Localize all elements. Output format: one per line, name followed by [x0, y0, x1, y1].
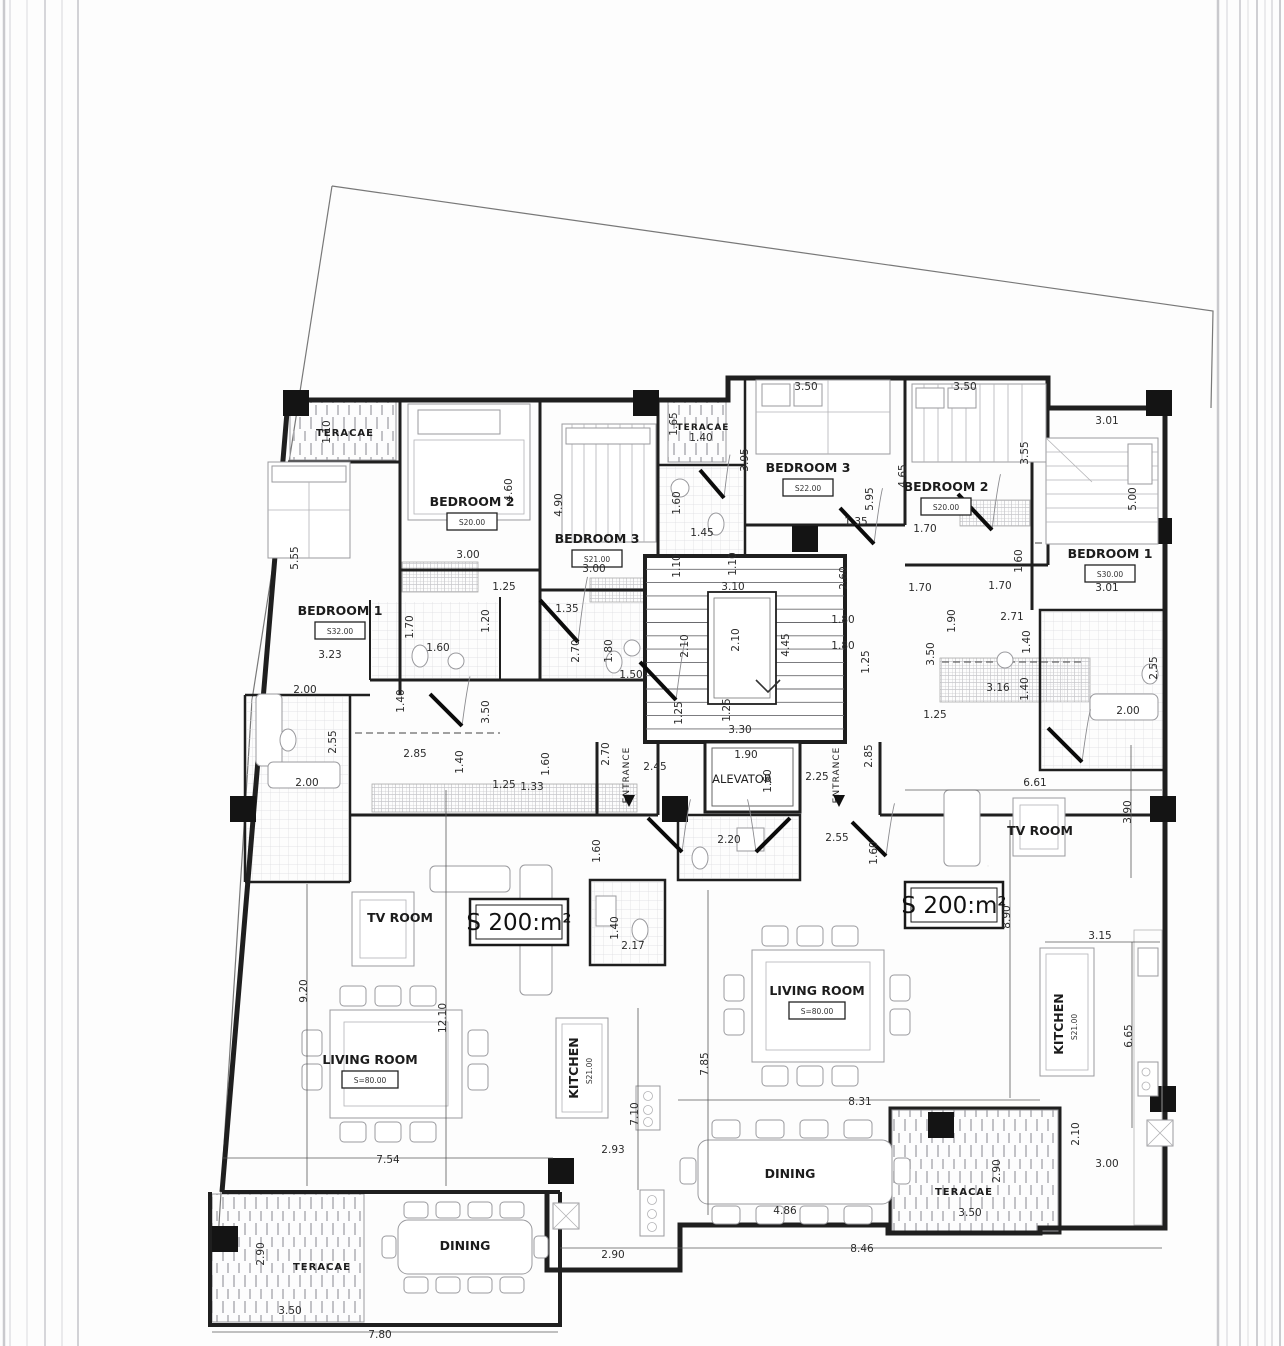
- room-label: DINING: [440, 1238, 491, 1253]
- dimension-label: 1.70: [988, 580, 1011, 592]
- stove-bottom-left: [640, 1190, 664, 1236]
- room-label: LIVING ROOM: [322, 1052, 417, 1067]
- dimension-label: 2.55: [825, 832, 848, 844]
- room-label: DINING: [765, 1166, 816, 1181]
- room-label: TERACAE: [935, 1187, 993, 1198]
- dimension-label: 2.70: [570, 639, 582, 662]
- dimension-label: 1.70: [913, 523, 936, 535]
- dimension-label: 1.60: [426, 642, 449, 654]
- dimension-label: 1.25: [721, 698, 733, 721]
- kitchen-island-left: [556, 1018, 608, 1118]
- room-label: BEDROOM 1: [1068, 546, 1153, 561]
- dimension-label: 1.35: [844, 516, 867, 528]
- dimension-label: 2.60: [838, 566, 850, 589]
- unit-area-right: S 200:m²: [901, 882, 1006, 928]
- dimension-label: 1.40: [454, 750, 466, 773]
- vent-shaft-left: [553, 1203, 579, 1229]
- dimension-label: 1.60: [591, 839, 603, 862]
- dimension-label: 2.55: [327, 730, 339, 753]
- dimension-label: 2.10: [1070, 1122, 1082, 1145]
- dimension-label: 2.90: [255, 1242, 267, 1265]
- room-area-label: S=80.00: [354, 1076, 387, 1085]
- dimension-label: 3.00: [582, 563, 605, 575]
- dimension-label: 1.25: [923, 709, 946, 721]
- room-label: BEDROOM 2: [430, 494, 515, 509]
- dimension-label: 1.40: [395, 689, 407, 712]
- dimension-label: 8.46: [850, 1243, 874, 1255]
- floor-plan-sheet: ALEVATOR ENTRANCE ENTRANCE: [0, 0, 1284, 1346]
- dimension-label: 7.80: [368, 1329, 391, 1341]
- room-label: TV ROOM: [367, 910, 433, 925]
- dimension-label: 1.80: [603, 639, 615, 662]
- dimension-label: 2.00: [293, 684, 316, 696]
- dimension-label: 5.55: [289, 546, 301, 569]
- room-area-label: S=80.00: [801, 1007, 834, 1016]
- dimension-label: 1.25: [673, 701, 685, 724]
- dimension-label: 1.60: [762, 769, 774, 792]
- dimension-label: 3.55: [1019, 441, 1031, 464]
- dimension-label: 5.00: [1127, 487, 1139, 510]
- room-label: KITCHEN: [1051, 993, 1066, 1055]
- dimension-label: 2.10: [679, 634, 691, 657]
- dimension-label: 1.10: [727, 552, 739, 575]
- dimension-label: 3.90: [1122, 800, 1134, 823]
- tv-cabinet-left: [352, 892, 414, 966]
- room-area-label: S32.00: [327, 627, 353, 636]
- room-area-label: S30.00: [1097, 570, 1123, 579]
- dimension-label: 2.85: [403, 748, 426, 760]
- dimension-label: 1.33: [520, 781, 543, 793]
- dimension-label: 4.65: [897, 464, 909, 487]
- dimension-label: 1.60: [868, 841, 880, 864]
- dimension-label: 3.00: [1095, 1158, 1118, 1170]
- room-label: KITCHEN: [566, 1037, 581, 1099]
- dimension-label: 3.50: [925, 642, 937, 665]
- room-label: BEDROOM 2: [904, 479, 989, 494]
- dimension-label: 6.65: [1123, 1024, 1135, 1047]
- dimension-label: 1.20: [480, 609, 492, 632]
- dimension-label: 4.90: [553, 493, 565, 516]
- dimension-label: 12.10: [437, 1003, 449, 1033]
- dimension-label: 3.50: [480, 700, 492, 723]
- dimension-label: 3.10: [721, 581, 744, 593]
- dimension-label: 1.65: [668, 412, 680, 435]
- kitchen-island-right: [1040, 948, 1094, 1076]
- bed-right-bedroom3: [756, 380, 890, 454]
- room-area-label: S22.00: [795, 484, 821, 493]
- dimension-label: 1.90: [734, 749, 757, 761]
- dimension-label: 2.70: [600, 742, 612, 765]
- dimension-label: 7.10: [629, 1102, 641, 1125]
- dimension-label: 3.16: [986, 682, 1010, 694]
- dimension-label: 6.61: [1023, 777, 1046, 789]
- dimension-label: 2.45: [643, 761, 666, 773]
- dimension-label: 1.40: [1021, 630, 1033, 653]
- dimension-label: 8.90: [1001, 905, 1013, 928]
- dimension-label: 3.01: [1095, 582, 1118, 594]
- room-label: BEDROOM 1: [298, 603, 383, 618]
- dimension-label: 1.45: [690, 527, 713, 539]
- dimension-label: 5.95: [864, 487, 876, 510]
- dimension-label: 3.00: [456, 549, 479, 561]
- dimension-label: 3.01: [1095, 415, 1118, 427]
- bed-left-bedroom1: [268, 462, 350, 558]
- unit-area-right-label: S 200:m²: [901, 893, 1006, 919]
- dimension-label: 4.86: [773, 1205, 797, 1217]
- room-label: TV ROOM: [1007, 823, 1073, 838]
- dimension-label: 3.50: [278, 1305, 301, 1317]
- dimension-label: 1.80: [831, 614, 854, 626]
- dimension-label: 4.60: [503, 478, 515, 501]
- dimension-label: 1.10: [321, 420, 333, 443]
- dimension-label: 8.31: [848, 1096, 871, 1108]
- dimension-label: 1.40: [609, 916, 621, 939]
- room-label: TERACAE: [293, 1262, 351, 1273]
- dimension-label: 1.60: [1013, 549, 1025, 572]
- bed-left-bedroom3: [562, 424, 656, 542]
- door-leaf: [430, 694, 462, 726]
- dimension-label: 7.85: [699, 1052, 711, 1075]
- dimension-label: 2.17: [621, 940, 644, 952]
- dimension-label: 2.25: [805, 771, 828, 783]
- bed-right-bedroom1: [1046, 438, 1158, 544]
- dimension-label: 2.20: [717, 834, 740, 846]
- dimension-label: 7.54: [376, 1154, 400, 1166]
- door-swing-arc: [462, 676, 470, 726]
- vent-shaft-right: [1147, 1120, 1173, 1146]
- dimension-label: 1.50: [619, 669, 642, 681]
- dimension-label: 3.50: [958, 1207, 981, 1219]
- dimension-label: 1.40: [1019, 677, 1031, 700]
- entrance-right-label: ENTRANCE: [832, 747, 842, 804]
- dimension-label: 2.00: [1116, 705, 1139, 717]
- dimension-label: 1.70: [404, 615, 416, 638]
- door-swing-arc: [886, 803, 895, 856]
- dimension-label: 1.25: [492, 581, 515, 593]
- dimension-label: 1.60: [671, 491, 683, 514]
- floor-plan-drawing: ALEVATOR ENTRANCE ENTRANCE: [0, 0, 1284, 1346]
- dimension-label: 2.71: [1000, 611, 1023, 623]
- dimension-label: 1.10: [671, 554, 683, 577]
- dimension-label: 1.90: [946, 609, 958, 632]
- dimension-label: 2.55: [1148, 656, 1160, 679]
- dimension-label: 3.15: [1088, 930, 1111, 942]
- dimension-label: 1.25: [860, 650, 872, 673]
- dimension-label: 2.90: [601, 1249, 624, 1261]
- stair-well: [708, 592, 776, 704]
- room-area-label: S21.00: [1070, 1014, 1079, 1040]
- room-area-label: S20.00: [933, 503, 959, 512]
- entrance-left-label: ENTRANCE: [622, 747, 632, 804]
- room-label: BEDROOM 3: [766, 460, 851, 475]
- dimension-label: 2.93: [601, 1144, 624, 1156]
- dimension-label: 1.25: [492, 779, 515, 791]
- dimension-label: 2.85: [863, 744, 875, 767]
- room-label: BEDROOM 3: [555, 531, 640, 546]
- dimension-label: 3.50: [953, 381, 976, 393]
- unit-area-left-label: S 200:m²: [466, 910, 571, 936]
- room-label: LIVING ROOM: [769, 983, 864, 998]
- room-area-label: S20.00: [459, 518, 485, 527]
- right-border-decoration: [1218, 0, 1280, 1346]
- dimension-label: 9.20: [298, 979, 310, 1002]
- kitchen-counter-right: [1134, 930, 1162, 1225]
- dimension-label: 4.45: [780, 633, 792, 656]
- dimension-label: 3.30: [728, 724, 751, 736]
- dimension-label: 3.23: [318, 649, 341, 661]
- dimension-label: 2.90: [991, 1159, 1003, 1182]
- dimension-label: 3.95: [739, 448, 751, 471]
- dimension-label: 2.10: [730, 628, 742, 651]
- dimension-label: 1.70: [908, 582, 931, 594]
- dimension-label: 1.40: [689, 432, 712, 444]
- dimension-label: 1.35: [555, 603, 578, 615]
- dimension-label: 2.00: [295, 777, 318, 789]
- dimension-label: 1.60: [540, 752, 552, 775]
- dimension-label: 3.50: [794, 381, 817, 393]
- left-border-decoration: [4, 0, 78, 1346]
- dimension-label: 1.80: [831, 640, 854, 652]
- unit-area-left: S 200:m²: [466, 899, 571, 945]
- room-area-label: S21.00: [585, 1058, 594, 1084]
